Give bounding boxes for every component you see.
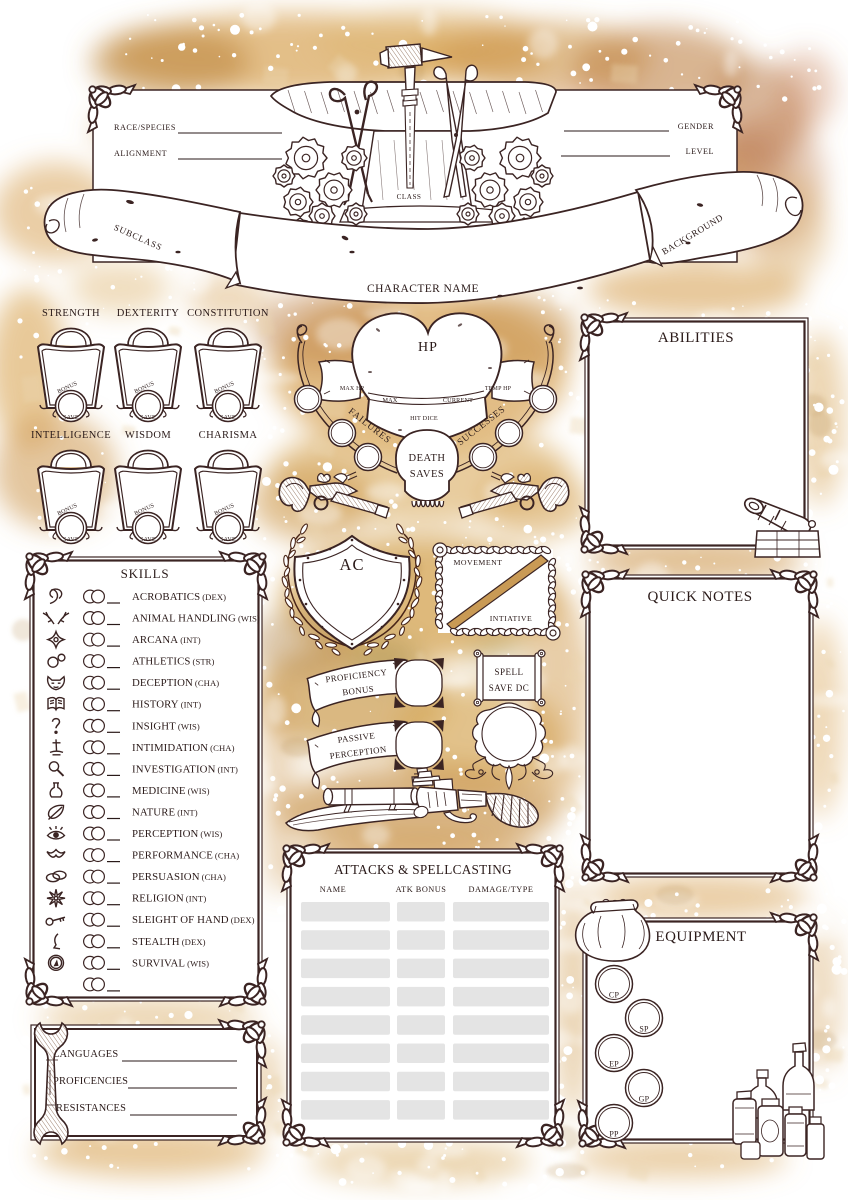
svg-text:SAVE DC: SAVE DC	[489, 683, 530, 693]
svg-text:SLEIGHT OF HAND(DEX): SLEIGHT OF HAND(DEX)	[132, 914, 255, 926]
svg-text:SURVIVAL(WIS): SURVIVAL(WIS)	[132, 957, 209, 969]
svg-text:CURRENT: CURRENT	[443, 397, 473, 404]
svg-text:SAVE: SAVE	[140, 415, 156, 421]
svg-text:ANIMAL HANDLING(WIS): ANIMAL HANDLING(WIS)	[132, 613, 260, 625]
svg-text:PROFICENCIES: PROFICENCIES	[53, 1076, 128, 1087]
svg-text:ATK BONUS: ATK BONUS	[396, 885, 447, 894]
svg-text:DEATH: DEATH	[409, 453, 446, 464]
svg-text:INVESTIGATION(INT): INVESTIGATION(INT)	[132, 763, 238, 775]
svg-text:ACROBATICS(DEX): ACROBATICS(DEX)	[132, 591, 226, 603]
svg-text:SKILLS: SKILLS	[121, 566, 170, 581]
svg-text:ALIGNMENT: ALIGNMENT	[114, 149, 167, 158]
svg-text:NATURE(INT): NATURE(INT)	[132, 807, 198, 819]
svg-text:HP: HP	[418, 340, 438, 355]
svg-text:HISTORY(INT): HISTORY(INT)	[132, 699, 201, 711]
svg-text:CLASS: CLASS	[397, 193, 422, 201]
svg-text:DAMAGE/TYPE: DAMAGE/TYPE	[469, 885, 534, 894]
svg-text:PP: PP	[609, 1130, 619, 1139]
svg-text:STRENGTH: STRENGTH	[42, 308, 100, 319]
svg-text:SAVE: SAVE	[63, 415, 79, 421]
svg-text:CHARISMA: CHARISMA	[199, 430, 258, 441]
svg-text:LEVEL: LEVEL	[686, 147, 714, 156]
svg-text:EQUIPMENT: EQUIPMENT	[655, 929, 746, 945]
svg-text:INTIATIVE: INTIATIVE	[490, 614, 533, 623]
svg-text:RELIGION(INT): RELIGION(INT)	[132, 893, 206, 905]
svg-text:QUICK NOTES: QUICK NOTES	[647, 589, 752, 605]
svg-text:SAVE: SAVE	[220, 415, 236, 421]
svg-text:ARCANA(INT): ARCANA(INT)	[132, 634, 201, 646]
svg-text:STEALTH(DEX): STEALTH(DEX)	[132, 936, 206, 948]
svg-text:SAVE: SAVE	[140, 537, 156, 543]
svg-text:SAVE: SAVE	[220, 537, 236, 543]
svg-text:SPELL: SPELL	[494, 667, 523, 677]
svg-text:TEMP HP: TEMP HP	[485, 386, 512, 392]
svg-text:DEXTERITY: DEXTERITY	[117, 308, 180, 319]
svg-text:ATTACKS & SPELLCASTING: ATTACKS & SPELLCASTING	[334, 862, 512, 877]
svg-text:PERFORMANCE(CHA): PERFORMANCE(CHA)	[132, 850, 239, 862]
svg-text:SAVE: SAVE	[63, 537, 79, 543]
svg-text:EP: EP	[609, 1060, 619, 1069]
svg-text:CONSTITUTION: CONSTITUTION	[187, 308, 269, 319]
svg-text:GP: GP	[639, 1095, 650, 1104]
svg-text:INSIGHT(WIS): INSIGHT(WIS)	[132, 720, 200, 732]
svg-text:LANGUAGES: LANGUAGES	[53, 1049, 118, 1060]
svg-text:INTELLIGENCE: INTELLIGENCE	[31, 430, 111, 441]
svg-text:MAX: MAX	[382, 397, 397, 404]
svg-text:DECEPTION(CHA): DECEPTION(CHA)	[132, 677, 219, 689]
svg-text:HIT DICE: HIT DICE	[410, 415, 438, 422]
svg-text:RESISTANCES: RESISTANCES	[56, 1103, 126, 1114]
svg-text:PERSUASION(CHA): PERSUASION(CHA)	[132, 871, 226, 883]
svg-text:ABILITIES: ABILITIES	[658, 330, 734, 346]
svg-text:MOVEMENT: MOVEMENT	[453, 558, 502, 567]
svg-text:MEDICINE(WIS): MEDICINE(WIS)	[132, 785, 210, 797]
svg-text:AC: AC	[340, 555, 365, 574]
svg-text:WISDOM: WISDOM	[125, 430, 171, 441]
svg-text:RACE/SPECIES: RACE/SPECIES	[114, 123, 176, 132]
svg-text:GENDER: GENDER	[678, 122, 714, 131]
svg-text:CP: CP	[609, 991, 620, 1000]
svg-text:ATHLETICS(STR): ATHLETICS(STR)	[132, 656, 215, 668]
svg-text:MAX HP: MAX HP	[340, 386, 365, 392]
svg-text:CHARACTER NAME: CHARACTER NAME	[367, 283, 479, 295]
svg-text:SP: SP	[639, 1025, 649, 1034]
svg-text:SAVES: SAVES	[410, 469, 444, 480]
svg-text:NAME: NAME	[320, 885, 346, 894]
svg-text:PERCEPTION(WIS): PERCEPTION(WIS)	[132, 828, 222, 840]
svg-text:INTIMIDATION(CHA): INTIMIDATION(CHA)	[132, 742, 235, 754]
